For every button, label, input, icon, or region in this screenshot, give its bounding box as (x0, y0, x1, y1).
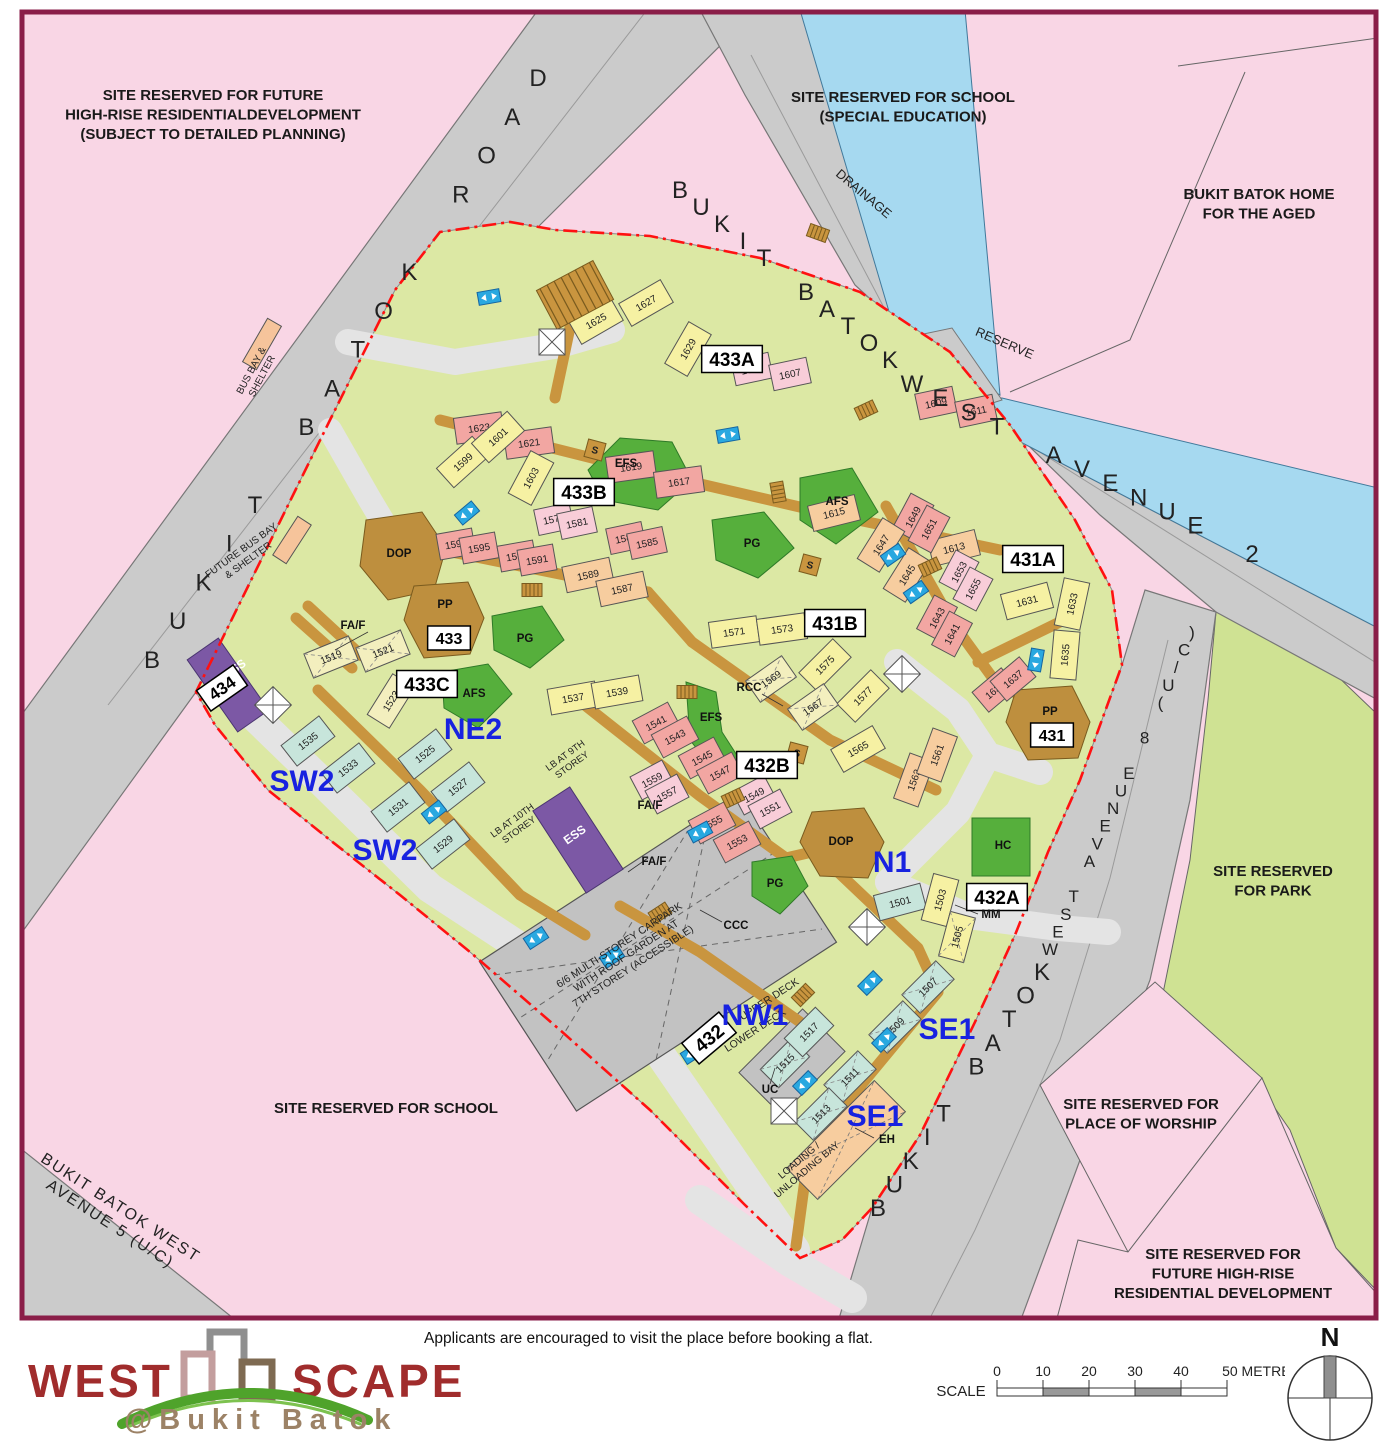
svg-text:432A: 432A (974, 888, 1020, 909)
road-name-letter: K (714, 211, 730, 238)
scale-tick: 40 (1173, 1363, 1189, 1379)
road-name-letter: B (144, 647, 160, 674)
s-marker: S (584, 439, 606, 461)
road-name-letter: K (882, 347, 898, 374)
scale-label: SCALE (936, 1383, 985, 1400)
road-name-letter: O (1016, 983, 1035, 1010)
road-name-letter: S (961, 399, 977, 426)
stair-icon (522, 584, 542, 597)
precinct-label-433: 433 (428, 626, 471, 650)
svg-text:433: 433 (436, 631, 463, 648)
block-1635: 1635 (1050, 630, 1080, 680)
road-name-letter: A (504, 104, 520, 131)
road-name-letter: T (1068, 887, 1078, 906)
road-name-letter: ( (1158, 693, 1164, 712)
site-label: RESIDENTIAL DEVELOPMENT (1114, 1285, 1332, 1302)
zone-label-SE1: SE1 (847, 1100, 904, 1133)
road-name-letter: W (1042, 940, 1058, 959)
road-name-letter: K (903, 1148, 919, 1175)
scale-tick: 30 (1127, 1363, 1143, 1379)
zone-label-N1: N1 (873, 846, 911, 879)
road-name-letter: K (401, 259, 417, 286)
facility-label-FA/F: FA/F (341, 620, 366, 632)
facility-label-AFS: AFS (826, 496, 849, 508)
road-name-letter: U (169, 608, 186, 635)
road-name-letter: A (1046, 442, 1062, 469)
site-label: SITE RESERVED FOR SCHOOL (274, 1100, 498, 1117)
road-name-letter: E (1052, 922, 1063, 941)
site-label: (SUBJECT TO DETAILED PLANNING) (80, 126, 345, 143)
road-name-letter: O (860, 330, 879, 357)
facility-label-CCC: CCC (724, 920, 749, 932)
road-name-letter: C (1178, 641, 1190, 660)
svg-text:431: 431 (1039, 728, 1066, 745)
stair-icon (770, 481, 786, 503)
site-label: BUKIT BATOK HOME (1183, 186, 1334, 203)
facility-label-DOP: DOP (387, 548, 412, 560)
compass-north-label: N (1321, 1322, 1340, 1352)
legend-bar: WEST SCAPE @Bukit Batok Applicants are e… (0, 1322, 1390, 1450)
site-label: HIGH-RISE RESIDENTIALDEVELOPMENT (65, 107, 361, 124)
facility-label-EFS: EFS (615, 458, 638, 470)
road-name-letter: N (1130, 484, 1147, 511)
facility-label-EH: EH (879, 1134, 895, 1146)
facility-label-EFS: EFS (700, 712, 723, 724)
road-name-letter: B (968, 1053, 984, 1080)
road-name-letter: E (932, 385, 948, 412)
scale-end-label: 50 METRES (1222, 1363, 1285, 1379)
site-label: SITE RESERVED (1213, 863, 1333, 880)
block-1591: 1591 (517, 544, 557, 576)
road-name-letter: B (298, 414, 314, 441)
road-name-letter: A (819, 296, 835, 323)
road-name-letter: E (1187, 513, 1203, 540)
precinct-label-432B: 432B (737, 752, 798, 779)
road-name-letter: 8 (1140, 729, 1149, 748)
facility-label-FA/F: FA/F (638, 800, 663, 812)
road-name-letter: A (1084, 852, 1096, 871)
svg-text:431A: 431A (1010, 550, 1056, 571)
road-name-letter: / (1174, 658, 1179, 677)
road-name-letter: A (985, 1030, 1001, 1057)
road-name-letter: T (351, 337, 366, 364)
scale-bar: SCALE01020304050 METRES (935, 1350, 1285, 1419)
facility-label-PG: PG (744, 538, 761, 550)
facility-label-HC: HC (995, 840, 1012, 852)
road-name-letter: B (870, 1195, 886, 1222)
facility-label-RCC: RCC (737, 682, 762, 694)
road-name-letter: K (1034, 959, 1050, 986)
site-label: PLACE OF WORSHIP (1065, 1116, 1217, 1133)
road-name-letter: I (924, 1124, 931, 1151)
site-label: SITE RESERVED FOR (1063, 1096, 1219, 1113)
road-name-letter: O (374, 298, 393, 325)
westscape-logo: WEST SCAPE @Bukit Batok (24, 1326, 444, 1448)
road-name-letter: U (886, 1171, 903, 1198)
vent-shaft-icon (771, 1098, 797, 1124)
road-name-letter: V (1074, 456, 1090, 483)
precinct-label-433B: 433B (554, 479, 615, 506)
s-marker: S (799, 554, 821, 576)
road-name-letter: N (1107, 799, 1119, 818)
road-name-letter: W (901, 371, 924, 398)
svg-text:431B: 431B (812, 614, 857, 635)
site-label: SITE RESERVED FOR SCHOOL (791, 89, 1015, 106)
precinct-label-433A: 433A (702, 346, 763, 373)
zone-label-SW2: SW2 (352, 834, 417, 867)
block-1595: 1595 (459, 532, 499, 564)
facility-label-DOP: DOP (829, 836, 854, 848)
road-name-letter: R (452, 181, 469, 208)
road-name-letter: A (324, 375, 340, 402)
road-name-letter: E (1102, 470, 1118, 497)
road-name-letter: T (1002, 1006, 1017, 1033)
zone-label-NE2: NE2 (444, 713, 502, 746)
facility-label-PP: PP (1042, 706, 1058, 718)
svg-text:432B: 432B (744, 756, 789, 777)
road-name-letter: B (798, 279, 814, 306)
road-name-letter: S (1060, 905, 1071, 924)
facility-label-AFS: AFS (463, 688, 486, 700)
zone-label-SW2: SW2 (269, 765, 334, 798)
road-name-letter: U (1162, 676, 1174, 695)
facility-label-FA/F: FA/F (642, 856, 667, 868)
precinct-label-432A: 432A (967, 884, 1028, 911)
road-name-letter: D (529, 65, 546, 92)
site-label: FOR PARK (1234, 883, 1311, 900)
road-name-letter: V (1092, 834, 1104, 853)
road-name-letter: I (740, 228, 747, 255)
facility-label-PG: PG (517, 633, 534, 645)
site-label: SITE RESERVED FOR (1145, 1246, 1301, 1263)
site-plan-map: 1625162716291605160716091611162316211619… (0, 0, 1390, 1322)
site-label: FOR THE AGED (1203, 206, 1316, 223)
facility-label-UC: UC (762, 1084, 779, 1096)
north-compass: N (1278, 1322, 1382, 1450)
stair-icon (677, 686, 697, 699)
facility-label-PG: PG (767, 878, 784, 890)
compass-needle (1324, 1356, 1336, 1398)
road-name-letter: T (841, 313, 856, 340)
road-name-letter: T (936, 1101, 951, 1128)
scale-tick: 0 (993, 1363, 1001, 1379)
zone-label-NW1: NW1 (722, 999, 789, 1032)
road-name-letter: E (1123, 764, 1134, 783)
precinct-label-431A: 431A (1003, 546, 1064, 573)
svg-text:433B: 433B (561, 483, 606, 504)
road-name-letter: B (672, 177, 688, 204)
road-name-letter: U (692, 194, 709, 221)
vent-shaft-icon (539, 329, 565, 355)
site-label: FUTURE HIGH-RISE (1152, 1266, 1295, 1283)
road-name-letter: 2 (1245, 541, 1258, 568)
site-label: SITE RESERVED FOR FUTURE (103, 87, 324, 104)
svg-text:1635: 1635 (1060, 643, 1073, 667)
road-name-letter: U (1158, 499, 1175, 526)
site-label: (SPECIAL EDUCATION) (820, 109, 987, 126)
road-name-letter: ) (1189, 623, 1195, 642)
applicants-note: Applicants are encouraged to visit the p… (424, 1330, 873, 1348)
precinct-label-431: 431 (1031, 723, 1074, 747)
road-name-letter: E (1100, 817, 1111, 836)
scale-tick: 10 (1035, 1363, 1051, 1379)
site-plan-page: 1625162716291605160716091611162316211619… (0, 0, 1390, 1450)
road-name-letter: O (477, 143, 496, 170)
road-name-letter: T (757, 245, 772, 272)
road-name-letter: U (1115, 782, 1127, 801)
precinct-label-431B: 431B (805, 610, 866, 637)
scale-tick: 20 (1081, 1363, 1097, 1379)
facility-label-MM: MM (981, 909, 1000, 921)
precinct-label-433C: 433C (397, 671, 458, 698)
svg-text:433C: 433C (404, 675, 450, 696)
road-name-letter: T (990, 414, 1005, 441)
road-name-letter: T (248, 492, 263, 519)
svg-text:433A: 433A (709, 350, 755, 371)
facility-label-PP: PP (437, 599, 453, 611)
logo-subtitle-text: @Bukit Batok (124, 1404, 397, 1437)
zone-label-SE1: SE1 (919, 1013, 976, 1046)
